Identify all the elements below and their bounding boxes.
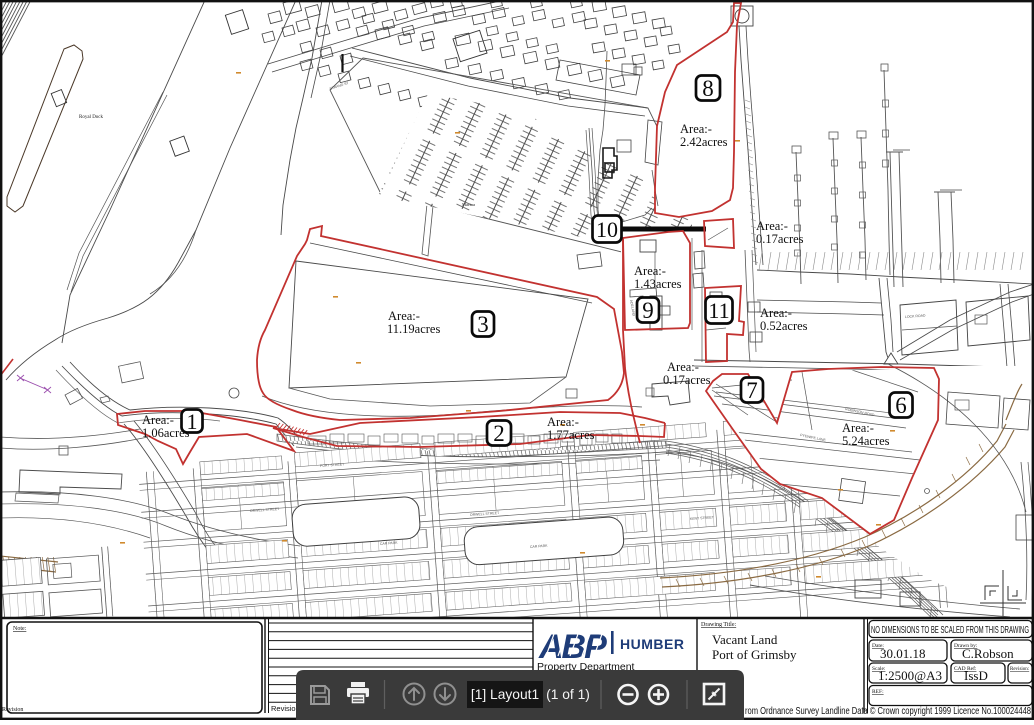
svg-text:Marina: Marina	[462, 202, 475, 207]
svg-text:Area:-: Area:-	[388, 309, 420, 323]
svg-text:IssD: IssD	[964, 668, 988, 683]
svg-text:0.17acres: 0.17acres	[663, 373, 711, 387]
svg-text:2: 2	[493, 421, 505, 446]
svg-text:Drawing Title:: Drawing Title:	[701, 622, 737, 628]
svg-text:8: 8	[702, 76, 714, 101]
svg-text:0.17acres: 0.17acres	[756, 232, 804, 246]
svg-text:1.43acres: 1.43acres	[634, 277, 682, 291]
svg-text:7: 7	[746, 378, 758, 403]
svg-text:HUMBER: HUMBER	[620, 636, 684, 652]
svg-text:Revision:: Revision:	[1010, 667, 1029, 672]
svg-text:(1 of 1): (1 of 1)	[546, 687, 590, 702]
svg-text:C.Robson: C.Robson	[962, 646, 1014, 661]
svg-text:Area:-: Area:-	[547, 415, 579, 429]
svg-text:0.52acres: 0.52acres	[760, 319, 808, 333]
svg-text:Royal Dock: Royal Dock	[79, 115, 104, 120]
svg-text:Area:-: Area:-	[760, 306, 792, 320]
svg-text:11: 11	[708, 298, 729, 323]
svg-text:1: 1	[187, 409, 198, 434]
svg-text:Revision: Revision	[271, 704, 300, 713]
svg-text:11.19acres: 11.19acres	[387, 322, 440, 336]
svg-text:2.42acres: 2.42acres	[680, 135, 728, 149]
svg-text:Vacant Land: Vacant Land	[712, 632, 778, 647]
svg-text:rom Ordnance Survey Landline D: rom Ordnance Survey Landline Data © Crow…	[745, 706, 1031, 717]
svg-text:1.77acres: 1.77acres	[547, 428, 595, 442]
svg-text:Area:-: Area:-	[680, 122, 712, 136]
svg-text:Area:-: Area:-	[634, 264, 666, 278]
svg-text:[1] Layout1: [1] Layout1	[471, 687, 539, 702]
svg-text:Port of Grimsby: Port of Grimsby	[712, 647, 797, 662]
svg-text:5.24acres: 5.24acres	[842, 434, 890, 448]
svg-text:6: 6	[895, 393, 907, 418]
svg-text:1:2500@A3: 1:2500@A3	[878, 668, 942, 683]
svg-text:30.01.18: 30.01.18	[880, 646, 926, 661]
svg-text:Note:: Note:	[13, 626, 27, 632]
svg-text:10: 10	[596, 217, 618, 242]
svg-text:Area:-: Area:-	[842, 421, 874, 435]
svg-text:Area:-: Area:-	[667, 360, 699, 374]
svg-text:Area:-: Area:-	[756, 219, 788, 233]
svg-text:3: 3	[477, 312, 489, 337]
svg-text:Area:-: Area:-	[142, 413, 174, 427]
svg-text:Revision: Revision	[2, 707, 23, 713]
svg-text:NO DIMENSIONS TO BE SCALED FRO: NO DIMENSIONS TO BE SCALED FROM THIS DRA…	[871, 625, 1029, 636]
svg-text:9: 9	[642, 298, 654, 323]
svg-text:REF:: REF:	[872, 689, 884, 695]
